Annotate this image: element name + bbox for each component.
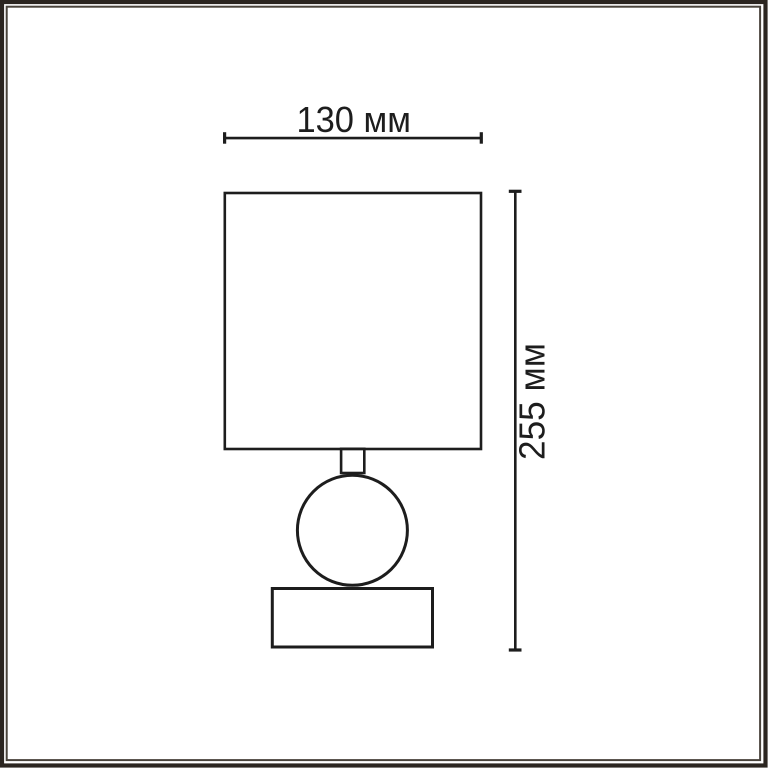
- svg-text:130 мм: 130 мм: [296, 99, 411, 140]
- svg-text:255 мм: 255 мм: [512, 343, 553, 460]
